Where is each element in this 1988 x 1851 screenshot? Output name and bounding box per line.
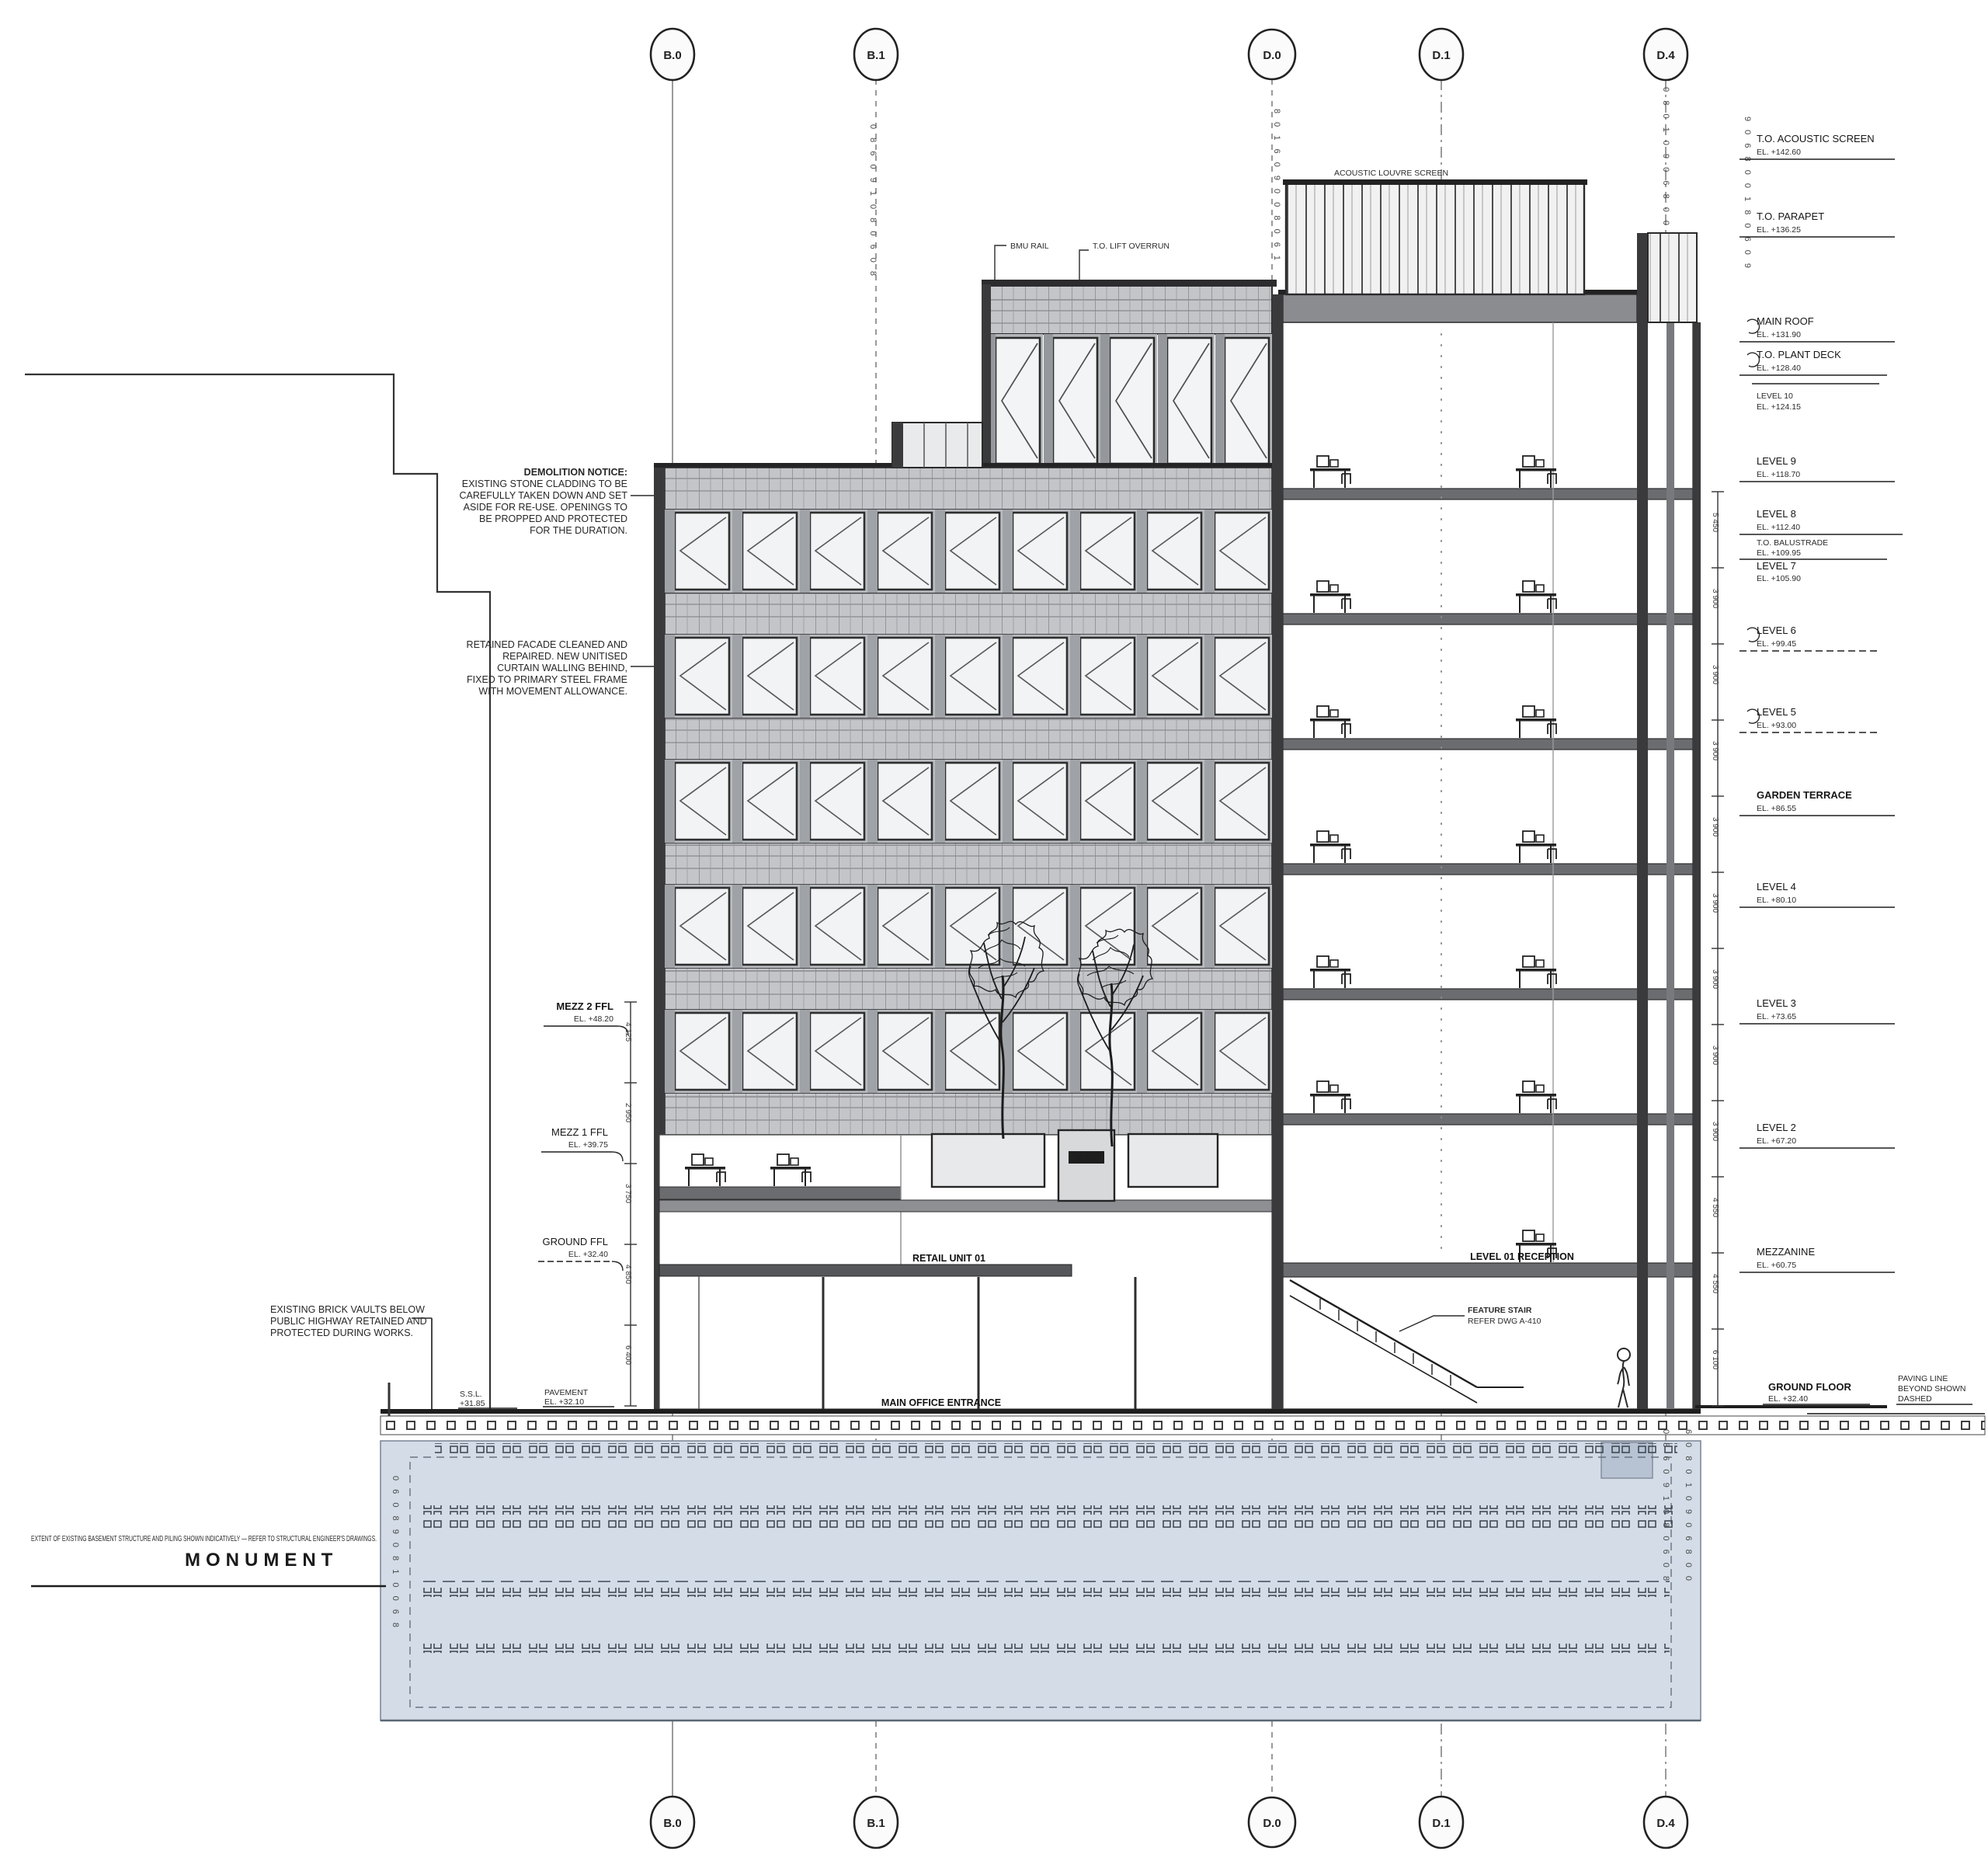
svg-text:B.0: B.0 [663,1817,681,1830]
svg-text:ASIDE FOR RE-USE. OPENINGS TO: ASIDE FOR RE-USE. OPENINGS TO [464,502,628,513]
svg-text:WITH MOVEMENT ALLOWANCE.: WITH MOVEMENT ALLOWANCE. [478,686,627,697]
right-level-annotations: T.O. ACOUSTIC SCREENEL. +142.60 T.O. PAR… [1739,133,1903,1272]
svg-text:REPAIRED. NEW UNITISED: REPAIRED. NEW UNITISED [502,651,627,662]
svg-text:9 0 6 8 0 0 1 8 0 6 0 9: 9 0 6 8 0 0 1 8 0 6 0 9 [1743,117,1752,271]
svg-text:EL. +39.75: EL. +39.75 [568,1140,608,1150]
svg-text:2 950: 2 950 [624,1103,632,1122]
svg-text:D.0: D.0 [1263,49,1281,62]
svg-text:5 450: 5 450 [1711,513,1719,532]
svg-text:MEZZ 2 FFL: MEZZ 2 FFL [556,1000,613,1012]
svg-text:EXTENT OF EXISTING BASEMENT ST: EXTENT OF EXISTING BASEMENT STRUCTURE AN… [31,1534,377,1543]
svg-text:EL. +105.90: EL. +105.90 [1757,574,1801,583]
svg-text:6 0 8 0 1 0 9 0 6 8 0 0: 6 0 8 0 1 0 9 0 6 8 0 0 [1661,74,1670,228]
svg-text:PUBLIC HIGHWAY RETAINED AND: PUBLIC HIGHWAY RETAINED AND [270,1316,427,1327]
svg-text:4 550: 4 550 [1711,1198,1719,1217]
svg-text:EL. +124.15: EL. +124.15 [1757,402,1801,412]
svg-text:3 900: 3 900 [1711,665,1719,684]
grade-labels-left: S.S.L. +31.85 PAVEMENT EL. +32.10 [458,1388,614,1408]
boundary-note: EXTENT OF EXISTING BASEMENT STRUCTURE AN… [31,1534,386,1586]
svg-text:BEYOND SHOWN: BEYOND SHOWN [1898,1384,1966,1393]
svg-text:B.1: B.1 [867,49,885,62]
penthouse-block [982,280,1277,468]
svg-text:D.0: D.0 [1263,1817,1281,1830]
svg-text:+31.85: +31.85 [460,1399,485,1408]
svg-text:REFER DWG A-410: REFER DWG A-410 [1468,1317,1541,1326]
svg-text:PAVING LINE: PAVING LINE [1898,1374,1948,1383]
svg-text:D.1: D.1 [1432,49,1450,62]
svg-text:LEVEL 8: LEVEL 8 [1757,508,1796,520]
svg-text:4 850: 4 850 [624,1265,632,1284]
svg-text:FIXED TO PRIMARY STEEL FRAME: FIXED TO PRIMARY STEEL FRAME [467,674,627,685]
svg-text:GROUND FLOOR: GROUND FLOOR [1768,1381,1851,1393]
grid-bubbles-top: B.0 B.1 D.0 D.1 D.4 [651,29,1687,80]
svg-text:CAREFULLY TAKEN DOWN AND SET: CAREFULLY TAKEN DOWN AND SET [460,490,628,501]
svg-text:6 400: 6 400 [624,1345,632,1365]
svg-text:0 6 0 8 9 0 8 1 0 0 6 8: 0 6 0 8 9 0 8 1 0 0 6 8 [391,1476,400,1630]
svg-text:6 100: 6 100 [1711,1350,1719,1369]
svg-text:T.O. ACOUSTIC SCREEN: T.O. ACOUSTIC SCREEN [1757,133,1875,144]
svg-text:EL. +142.60: EL. +142.60 [1757,148,1801,157]
svg-text:D.4: D.4 [1656,1817,1675,1830]
svg-text:LEVEL 9: LEVEL 9 [1757,455,1796,467]
bmu-label: BMU RAIL [1010,242,1049,251]
svg-text:T.O. PLANT DECK: T.O. PLANT DECK [1757,349,1841,360]
svg-text:EL. +128.40: EL. +128.40 [1757,364,1801,373]
section-drawing: 0 8 6 0 9 1 0 8 0 6 0 8 8 0 1 6 0 9 0 0 … [0,0,1988,1851]
svg-text:EXISTING BRICK VAULTS BELOW: EXISTING BRICK VAULTS BELOW [270,1304,425,1315]
svg-text:T.O. PARAPET: T.O. PARAPET [1757,210,1824,222]
note-facade: RETAINED FACADE CLEANED AND REPAIRED. NE… [467,639,654,697]
svg-text:RETAINED FACADE CLEANED AND: RETAINED FACADE CLEANED AND [467,639,627,650]
svg-text:EL. +93.00: EL. +93.00 [1757,721,1796,730]
svg-text:3 900: 3 900 [1711,969,1719,989]
retail-label: RETAIL UNIT 01 [912,1253,985,1264]
svg-text:EL. +136.25: EL. +136.25 [1757,225,1801,235]
svg-text:EL. +80.10: EL. +80.10 [1757,896,1796,905]
grid-bubble-label: B.0 [663,49,681,62]
roof-bulkhead [892,423,982,468]
architectural-section-sheet: 0 8 6 0 9 1 0 8 0 6 0 8 8 0 1 6 0 9 0 0 … [0,0,1988,1851]
svg-text:LEVEL 4: LEVEL 4 [1757,881,1796,892]
svg-text:LEVEL 10: LEVEL 10 [1757,391,1793,401]
mech-screen [1283,179,1587,294]
svg-text:EXISTING STONE CLADDING TO BE: EXISTING STONE CLADDING TO BE [462,478,627,489]
svg-text:FEATURE STAIR: FEATURE STAIR [1468,1306,1532,1315]
svg-text:EL. +112.40: EL. +112.40 [1757,523,1800,532]
svg-text:D.1: D.1 [1432,1817,1450,1830]
screen-label: ACOUSTIC LOUVRE SCREEN [1334,169,1448,178]
svg-text:D.4: D.4 [1656,49,1675,62]
svg-text:BE PROPPED AND PROTECTED: BE PROPPED AND PROTECTED [479,513,627,524]
window-row-5 [665,1010,1272,1093]
svg-text:T.O. BALUSTRADE: T.O. BALUSTRADE [1757,538,1828,548]
svg-text:MAIN ROOF: MAIN ROOF [1757,315,1814,327]
svg-text:LEVEL 2: LEVEL 2 [1757,1122,1796,1133]
svg-text:EL. +99.45: EL. +99.45 [1757,639,1796,649]
svg-text:MEZZANINE: MEZZANINE [1757,1246,1815,1258]
window-row-1 [665,510,1272,593]
svg-text:DASHED: DASHED [1898,1394,1932,1404]
svg-text:FOR THE DURATION.: FOR THE DURATION. [530,525,627,536]
svg-text:B.1: B.1 [867,1817,885,1830]
window-row-2 [665,635,1272,718]
svg-text:4 550: 4 550 [1711,1274,1719,1293]
svg-text:EL. +67.20: EL. +67.20 [1757,1136,1796,1146]
svg-text:3 900: 3 900 [1711,589,1719,608]
svg-text:EL. +118.70: EL. +118.70 [1757,470,1800,479]
dim-string-right [1712,492,1724,1406]
ground-annotations-right: GROUND FLOOR EL. +32.40 PAVING LINE BEYO… [1763,1374,1972,1404]
reception-label: LEVEL 01 RECEPTION [1470,1251,1574,1262]
left-level-tags: MEZZ 2 FFL EL. +48.20 MEZZ 1 FFL EL. +39… [538,1000,628,1271]
svg-text:PAVEMENT: PAVEMENT [544,1388,589,1397]
svg-text:EL. +48.20: EL. +48.20 [574,1014,613,1024]
svg-text:GARDEN TERRACE: GARDEN TERRACE [1757,789,1852,801]
svg-text:EL. +131.90: EL. +131.90 [1757,330,1801,339]
window-row-4 [665,885,1272,968]
svg-text:EL. +73.65: EL. +73.65 [1757,1012,1796,1021]
window-row-3 [665,760,1272,843]
svg-text:8 0 1 6 0 9 0 0 8 0 6 1: 8 0 1 6 0 9 0 0 8 0 6 1 [1272,109,1281,263]
svg-text:GROUND FFL: GROUND FFL [543,1236,609,1247]
svg-text:EL. +32.40: EL. +32.40 [1768,1394,1808,1404]
svg-text:PROTECTED DURING WORKS.: PROTECTED DURING WORKS. [270,1327,413,1338]
lift-overrun-label: T.O. LIFT OVERRUN [1093,242,1170,251]
basement-zone: 0 6 0 8 9 0 8 1 0 0 6 8 6 0 8 0 1 0 9 0 … [381,1429,1701,1721]
svg-text:EL. +32.10: EL. +32.10 [544,1397,584,1407]
svg-text:EL. +60.75: EL. +60.75 [1757,1261,1796,1270]
svg-text:LEVEL 6: LEVEL 6 [1757,625,1796,636]
svg-text:S.S.L.: S.S.L. [460,1390,482,1399]
svg-text:LEVEL 5: LEVEL 5 [1757,706,1796,718]
svg-text:3 900: 3 900 [1711,1046,1719,1065]
svg-text:3 900: 3 900 [1711,893,1719,913]
svg-text:CURTAIN WALLING BEHIND,: CURTAIN WALLING BEHIND, [497,663,627,673]
svg-text:MEZZ 1 FFL: MEZZ 1 FFL [551,1126,608,1138]
svg-text:3 900: 3 900 [1711,817,1719,837]
svg-text:0 8 6 0 9 1 0 8 0 6 0 8: 0 8 6 0 9 1 0 8 0 6 0 8 [1661,1429,1670,1584]
svg-text:EL. +32.40: EL. +32.40 [568,1250,608,1259]
svg-text:LEVEL 7: LEVEL 7 [1757,560,1796,572]
svg-text:3 900: 3 900 [1711,741,1719,760]
street-name: MONUMENT [185,1550,338,1571]
pylon-tag: M-001 [1076,1154,1098,1163]
right-section-block [1272,233,1701,1409]
entrance-label: MAIN OFFICE ENTRANCE [881,1397,1001,1408]
svg-text:3 900: 3 900 [1711,1122,1719,1141]
svg-text:LEVEL 3: LEVEL 3 [1757,997,1796,1009]
svg-text:3 750: 3 750 [624,1184,632,1203]
note-demolition: DEMOLITION NOTICE: EXISTING STONE CLADDI… [460,467,654,536]
svg-text:0 8 6 0 9 1 0 8 0 6 0 8: 0 8 6 0 9 1 0 8 0 6 0 8 [868,124,878,279]
grid-bubbles-bottom: B.0 B.1 D.0 D.1 D.4 [651,1797,1687,1848]
note-vaults: EXISTING BRICK VAULTS BELOW PUBLIC HIGHW… [270,1304,432,1338]
svg-text:EL. +86.55: EL. +86.55 [1757,804,1796,813]
adjacent-building-outline [25,374,490,1409]
svg-text:DEMOLITION NOTICE:: DEMOLITION NOTICE: [524,467,627,478]
svg-text:EL. +109.95: EL. +109.95 [1757,548,1801,558]
svg-text:6 0 8 0 1 0 9 0 6 8 0 0: 6 0 8 0 1 0 9 0 6 8 0 0 [1684,1429,1693,1584]
